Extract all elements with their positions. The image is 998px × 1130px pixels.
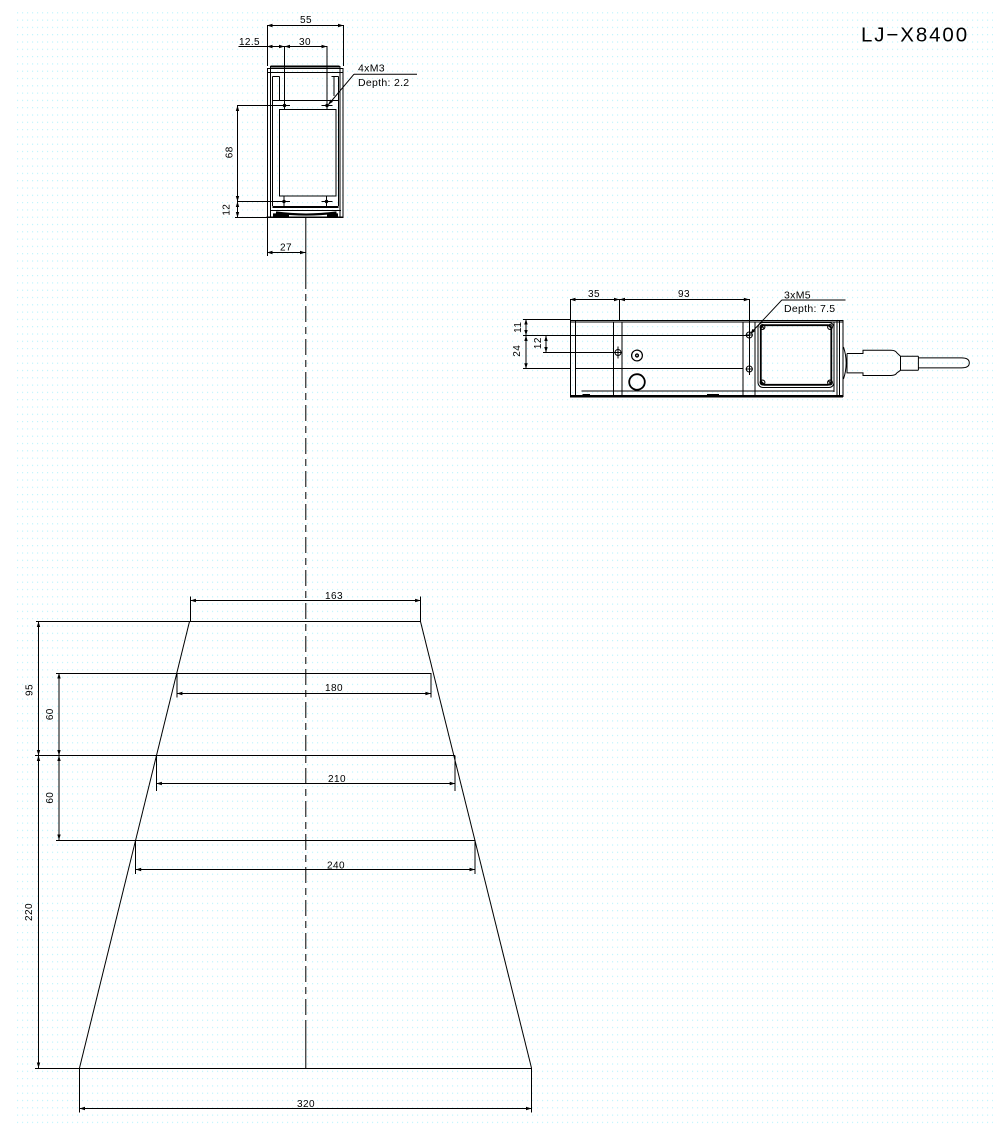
svg-text:3xM5: 3xM5 — [784, 289, 811, 301]
svg-text:163: 163 — [325, 591, 343, 602]
svg-text:95: 95 — [25, 684, 36, 696]
svg-text:12.5: 12.5 — [239, 37, 260, 48]
svg-text:27: 27 — [280, 243, 292, 254]
svg-text:11: 11 — [513, 322, 524, 333]
svg-text:240: 240 — [327, 861, 345, 872]
svg-text:24: 24 — [512, 345, 523, 357]
svg-text:LJ−X8400: LJ−X8400 — [861, 23, 969, 46]
svg-text:55: 55 — [300, 15, 312, 26]
svg-text:180: 180 — [325, 683, 343, 694]
svg-text:93: 93 — [678, 289, 690, 300]
svg-text:210: 210 — [328, 774, 346, 785]
svg-text:Depth: 7.5: Depth: 7.5 — [784, 303, 835, 315]
svg-text:35: 35 — [588, 289, 600, 300]
svg-text:12: 12 — [533, 337, 544, 349]
svg-text:4xM3: 4xM3 — [358, 63, 385, 75]
svg-text:320: 320 — [297, 1099, 315, 1110]
svg-text:68: 68 — [225, 146, 236, 158]
svg-text:60: 60 — [45, 792, 56, 804]
svg-text:Depth: 2.2: Depth: 2.2 — [358, 77, 409, 89]
svg-text:220: 220 — [24, 903, 35, 921]
svg-text:30: 30 — [299, 37, 311, 48]
svg-text:12: 12 — [222, 204, 233, 216]
svg-text:60: 60 — [45, 708, 56, 720]
